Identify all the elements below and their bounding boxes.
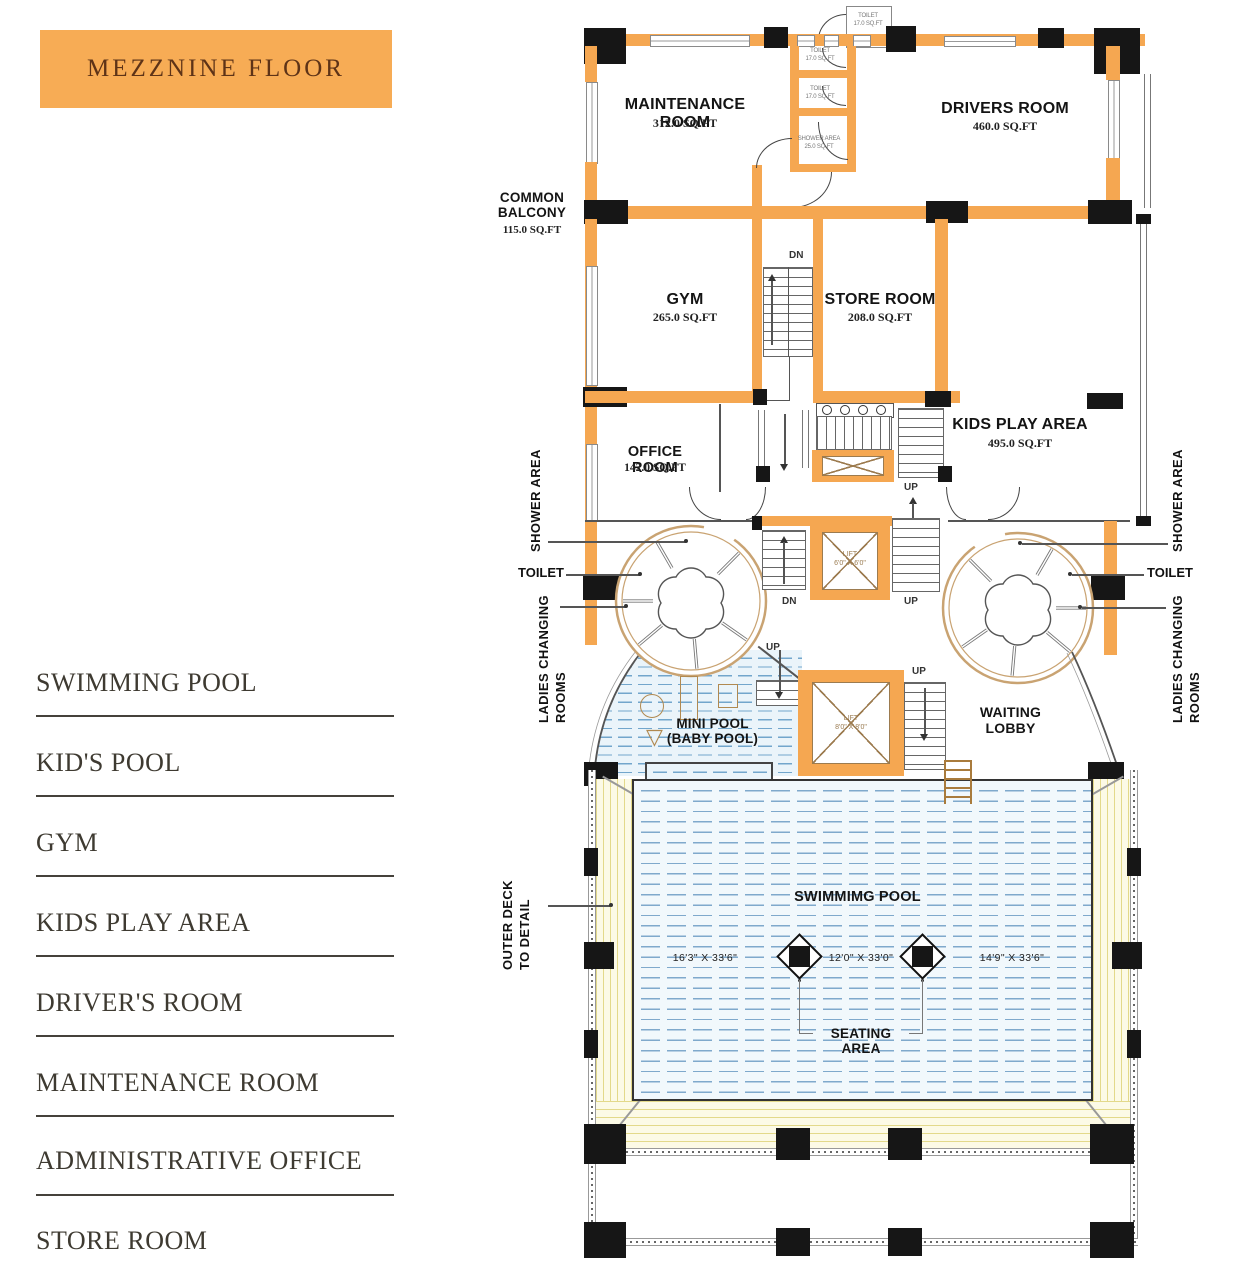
wall-segment [585, 391, 755, 403]
stair-divider [788, 267, 789, 357]
window [586, 266, 598, 386]
callout-text: SHOWER AREA [1170, 452, 1185, 552]
drivers-room-area: 460.0 SQ.FT [930, 119, 1080, 134]
drivers-room-label: DRIVERS ROOM [930, 100, 1080, 118]
stair-arrow-down [775, 692, 783, 699]
column [1112, 942, 1142, 969]
ladies-changing-room-left [613, 523, 769, 679]
column [1090, 1124, 1134, 1164]
stairs-up-label: UP [766, 642, 780, 653]
outer-deck [596, 779, 632, 1101]
stair-arrow-line [779, 650, 781, 694]
window-wall [1140, 220, 1147, 520]
column [753, 389, 767, 405]
lift-small-label: LIFT 6'0" X 6'0" [822, 550, 878, 568]
staircase [816, 416, 892, 450]
page-title: MEZZNINE FLOOR [40, 30, 392, 108]
callout-ladies-right: LADIES CHANGING ROOMS [1170, 598, 1202, 723]
railing-post [876, 405, 886, 415]
pool-toy-square [718, 684, 738, 708]
legend-divider [36, 1115, 394, 1117]
balcony-rail [1144, 74, 1151, 208]
leader-line [548, 905, 610, 907]
exterior-wall [588, 1238, 1138, 1246]
wall-segment [790, 164, 856, 172]
gym-area: 265.0 SQ.FT [630, 310, 740, 325]
floor-plan-page: MEZZNINE FLOOR SWIMMING POOL KID'S POOL … [0, 0, 1256, 1280]
seating-bracket-line [909, 1033, 923, 1034]
seating-area-label: SEATING AREA [811, 1026, 911, 1056]
stairs-up-label: UP [904, 482, 918, 493]
room-name: TOILET [796, 48, 844, 56]
callout-text: ROOMS [1187, 598, 1202, 723]
maintenance-room-area: 312.0 SQ.FT [600, 116, 770, 131]
railing-post [840, 405, 850, 415]
room-area: 17.0 SQ.FT [796, 56, 844, 64]
column [1088, 200, 1132, 224]
stairs-up-label: UP [904, 596, 918, 607]
lobby-curved-edge [1062, 648, 1132, 778]
mini-pool-sublabel: (BABY POOL) [655, 731, 770, 746]
room-area: 17.0 SQ.FT [796, 94, 844, 102]
stair-arrow-line [783, 542, 785, 584]
window [797, 35, 815, 47]
stairs-dn-label: DN [789, 250, 803, 261]
office-room-area: 142.0 SQ.FT [605, 462, 705, 474]
column [888, 1228, 922, 1256]
door-arc [689, 487, 721, 520]
wall-segment [585, 46, 597, 82]
outer-deck [1093, 779, 1130, 1101]
column [756, 466, 770, 482]
pool-toy-rect [680, 676, 698, 720]
railing-post [858, 405, 868, 415]
leader-dot [624, 604, 628, 608]
stair-return-line [789, 357, 790, 401]
callout-text: TO DETAIL [517, 845, 532, 970]
stair-arrow-line [924, 688, 926, 736]
callout-shower-right: SHOWER AREA [1170, 452, 1185, 552]
stair-arrow-line [771, 281, 773, 345]
leader-line [560, 606, 626, 608]
seating-bracket-line [922, 980, 923, 1034]
legend-item: ADMINISTRATIVE OFFICE [36, 1146, 362, 1176]
room-area: 17.0 SQ.FT [848, 21, 888, 29]
column [776, 1128, 810, 1160]
store-room-area: 208.0 SQ.FT [820, 310, 940, 325]
column [1127, 848, 1141, 876]
wall-segment [790, 108, 856, 116]
callout-text: SHOWER AREA [528, 452, 543, 552]
toilet-2-label: TOILET 17.0 SQ.FT [796, 86, 844, 101]
wall-segment [585, 206, 1130, 219]
stair-rail [802, 410, 809, 468]
column [764, 27, 788, 48]
kids-play-area-label: KIDS PLAY AREA [950, 416, 1090, 434]
wall-segment [790, 70, 856, 78]
pool-dimension: 16'3" X 33'6" [650, 952, 760, 964]
column [584, 848, 598, 876]
legend-item: STORE ROOM [36, 1226, 207, 1256]
stair-rail [758, 410, 765, 468]
wall-segment [1106, 46, 1120, 80]
door-arc [756, 138, 792, 168]
toilet-1-label: TOILET 17.0 SQ.FT [796, 48, 844, 63]
leader-dot [638, 572, 642, 576]
gym-label: GYM [640, 291, 730, 309]
shower-area-top-label: SHOWER AREA 25.0 SQ.FT [792, 136, 846, 151]
leader-dot [1078, 605, 1082, 609]
window [586, 82, 598, 164]
column [584, 942, 614, 969]
legend-item: GYM [36, 828, 98, 858]
legend-divider [36, 1035, 394, 1037]
column [1136, 516, 1151, 526]
legend-item: MAINTENANCE ROOM [36, 1068, 319, 1098]
pool-dimension: 14'9" X 33'6" [955, 952, 1069, 964]
room-name: TOILET [796, 86, 844, 94]
column [584, 1222, 626, 1258]
column [584, 1124, 626, 1164]
callout-shower-left: SHOWER AREA [528, 452, 543, 552]
floor-line [948, 520, 1130, 522]
door-arc [946, 487, 966, 520]
column [1127, 1030, 1141, 1058]
staircase [892, 518, 940, 592]
pool-ladder [944, 760, 972, 804]
waiting-lobby-label: WAITING LOBBY [958, 705, 1063, 736]
callout-text: LADIES CHANGING [1170, 598, 1185, 723]
stair-arrow-down [780, 464, 788, 471]
swimming-pool-label: SWIMMIMG POOL [785, 889, 930, 905]
column [1090, 1222, 1134, 1258]
legend-divider [36, 875, 394, 877]
leader-dot [1018, 541, 1022, 545]
leader-dot [684, 539, 688, 543]
legend-divider [36, 795, 394, 797]
wall-segment [752, 219, 762, 391]
pool-toy-circle [640, 694, 664, 718]
callout-outer-deck: OUTER DECK TO DETAIL [500, 845, 532, 970]
lift-name: LIFT [822, 550, 878, 559]
column [584, 1030, 598, 1058]
exterior-wall [596, 1148, 1130, 1156]
column [776, 1228, 810, 1256]
common-balcony-label: COMMON BALCONY [486, 190, 578, 220]
room-area: 25.0 SQ.FT [792, 144, 846, 152]
room-name: TOILET [848, 13, 888, 21]
lift-car [822, 456, 884, 476]
outer-deck [596, 1101, 1130, 1148]
window [586, 444, 598, 522]
pool-column-core [789, 946, 810, 967]
callout-text: OUTER DECK [500, 845, 515, 970]
stairs-dn-label: DN [782, 596, 796, 607]
kids-play-area-area: 495.0 SQ.FT [950, 436, 1090, 451]
callout-ladies-left: LADIES CHANGING ROOMS [536, 598, 568, 723]
pool-column-core [912, 946, 933, 967]
callout-toilet-right: TOILET [1147, 565, 1193, 580]
legend-item: DRIVER'S ROOM [36, 988, 243, 1018]
leader-line [1072, 574, 1144, 576]
mini-pool-label: MINI POOL [660, 716, 765, 731]
column [1136, 214, 1151, 224]
leader-line [566, 574, 640, 576]
callout-text: ROOMS [553, 598, 568, 723]
leader-dot [609, 903, 613, 907]
legend-divider [36, 715, 394, 717]
lift-size: 6'0" X 6'0" [822, 559, 878, 568]
column [752, 516, 762, 530]
door-arc [792, 172, 832, 208]
railing-post [822, 405, 832, 415]
stair-arrow-down [920, 734, 928, 741]
window [650, 35, 750, 47]
window [944, 36, 1016, 47]
column [886, 26, 916, 52]
floor-line [585, 520, 763, 522]
column [1038, 28, 1064, 48]
leader-dot [1068, 572, 1072, 576]
leader-line [548, 541, 686, 543]
wall-segment [752, 165, 762, 208]
leader-line [1082, 607, 1166, 609]
lift-large-label: LIFT 8'0" X 8'0" [812, 714, 890, 732]
toilet-annex-label: TOILET 17.0 SQ.FT [848, 13, 888, 28]
seating-bracket-line [799, 980, 800, 1034]
lift-name: LIFT [812, 714, 890, 723]
window [824, 35, 839, 47]
stairs-up-label: UP [912, 666, 926, 677]
column [938, 466, 952, 482]
door-arc [988, 487, 1020, 520]
office-wall [719, 404, 721, 492]
common-balcony-area: 115.0 SQ.FT [486, 224, 578, 236]
stair-return-line [764, 400, 790, 401]
stair-arrow-up [768, 274, 776, 281]
column [1087, 393, 1123, 409]
legend-divider [36, 955, 394, 957]
legend-item: KIDS PLAY AREA [36, 908, 251, 938]
legend-divider [36, 1194, 394, 1196]
store-room-label: STORE ROOM [820, 291, 940, 309]
legend-item: SWIMMING POOL [36, 668, 257, 698]
room-name: SHOWER AREA [792, 136, 846, 144]
column [1091, 576, 1125, 600]
column [888, 1128, 922, 1160]
callout-toilet-left: TOILET [518, 565, 564, 580]
callout-text: LADIES CHANGING [536, 598, 551, 723]
leader-line [1022, 543, 1168, 545]
column [925, 391, 951, 407]
legend-item: KID'S POOL [36, 748, 181, 778]
window [1108, 80, 1120, 160]
stair-arrow-line [784, 414, 786, 464]
lift-size: 8'0" X 8'0" [812, 723, 890, 732]
